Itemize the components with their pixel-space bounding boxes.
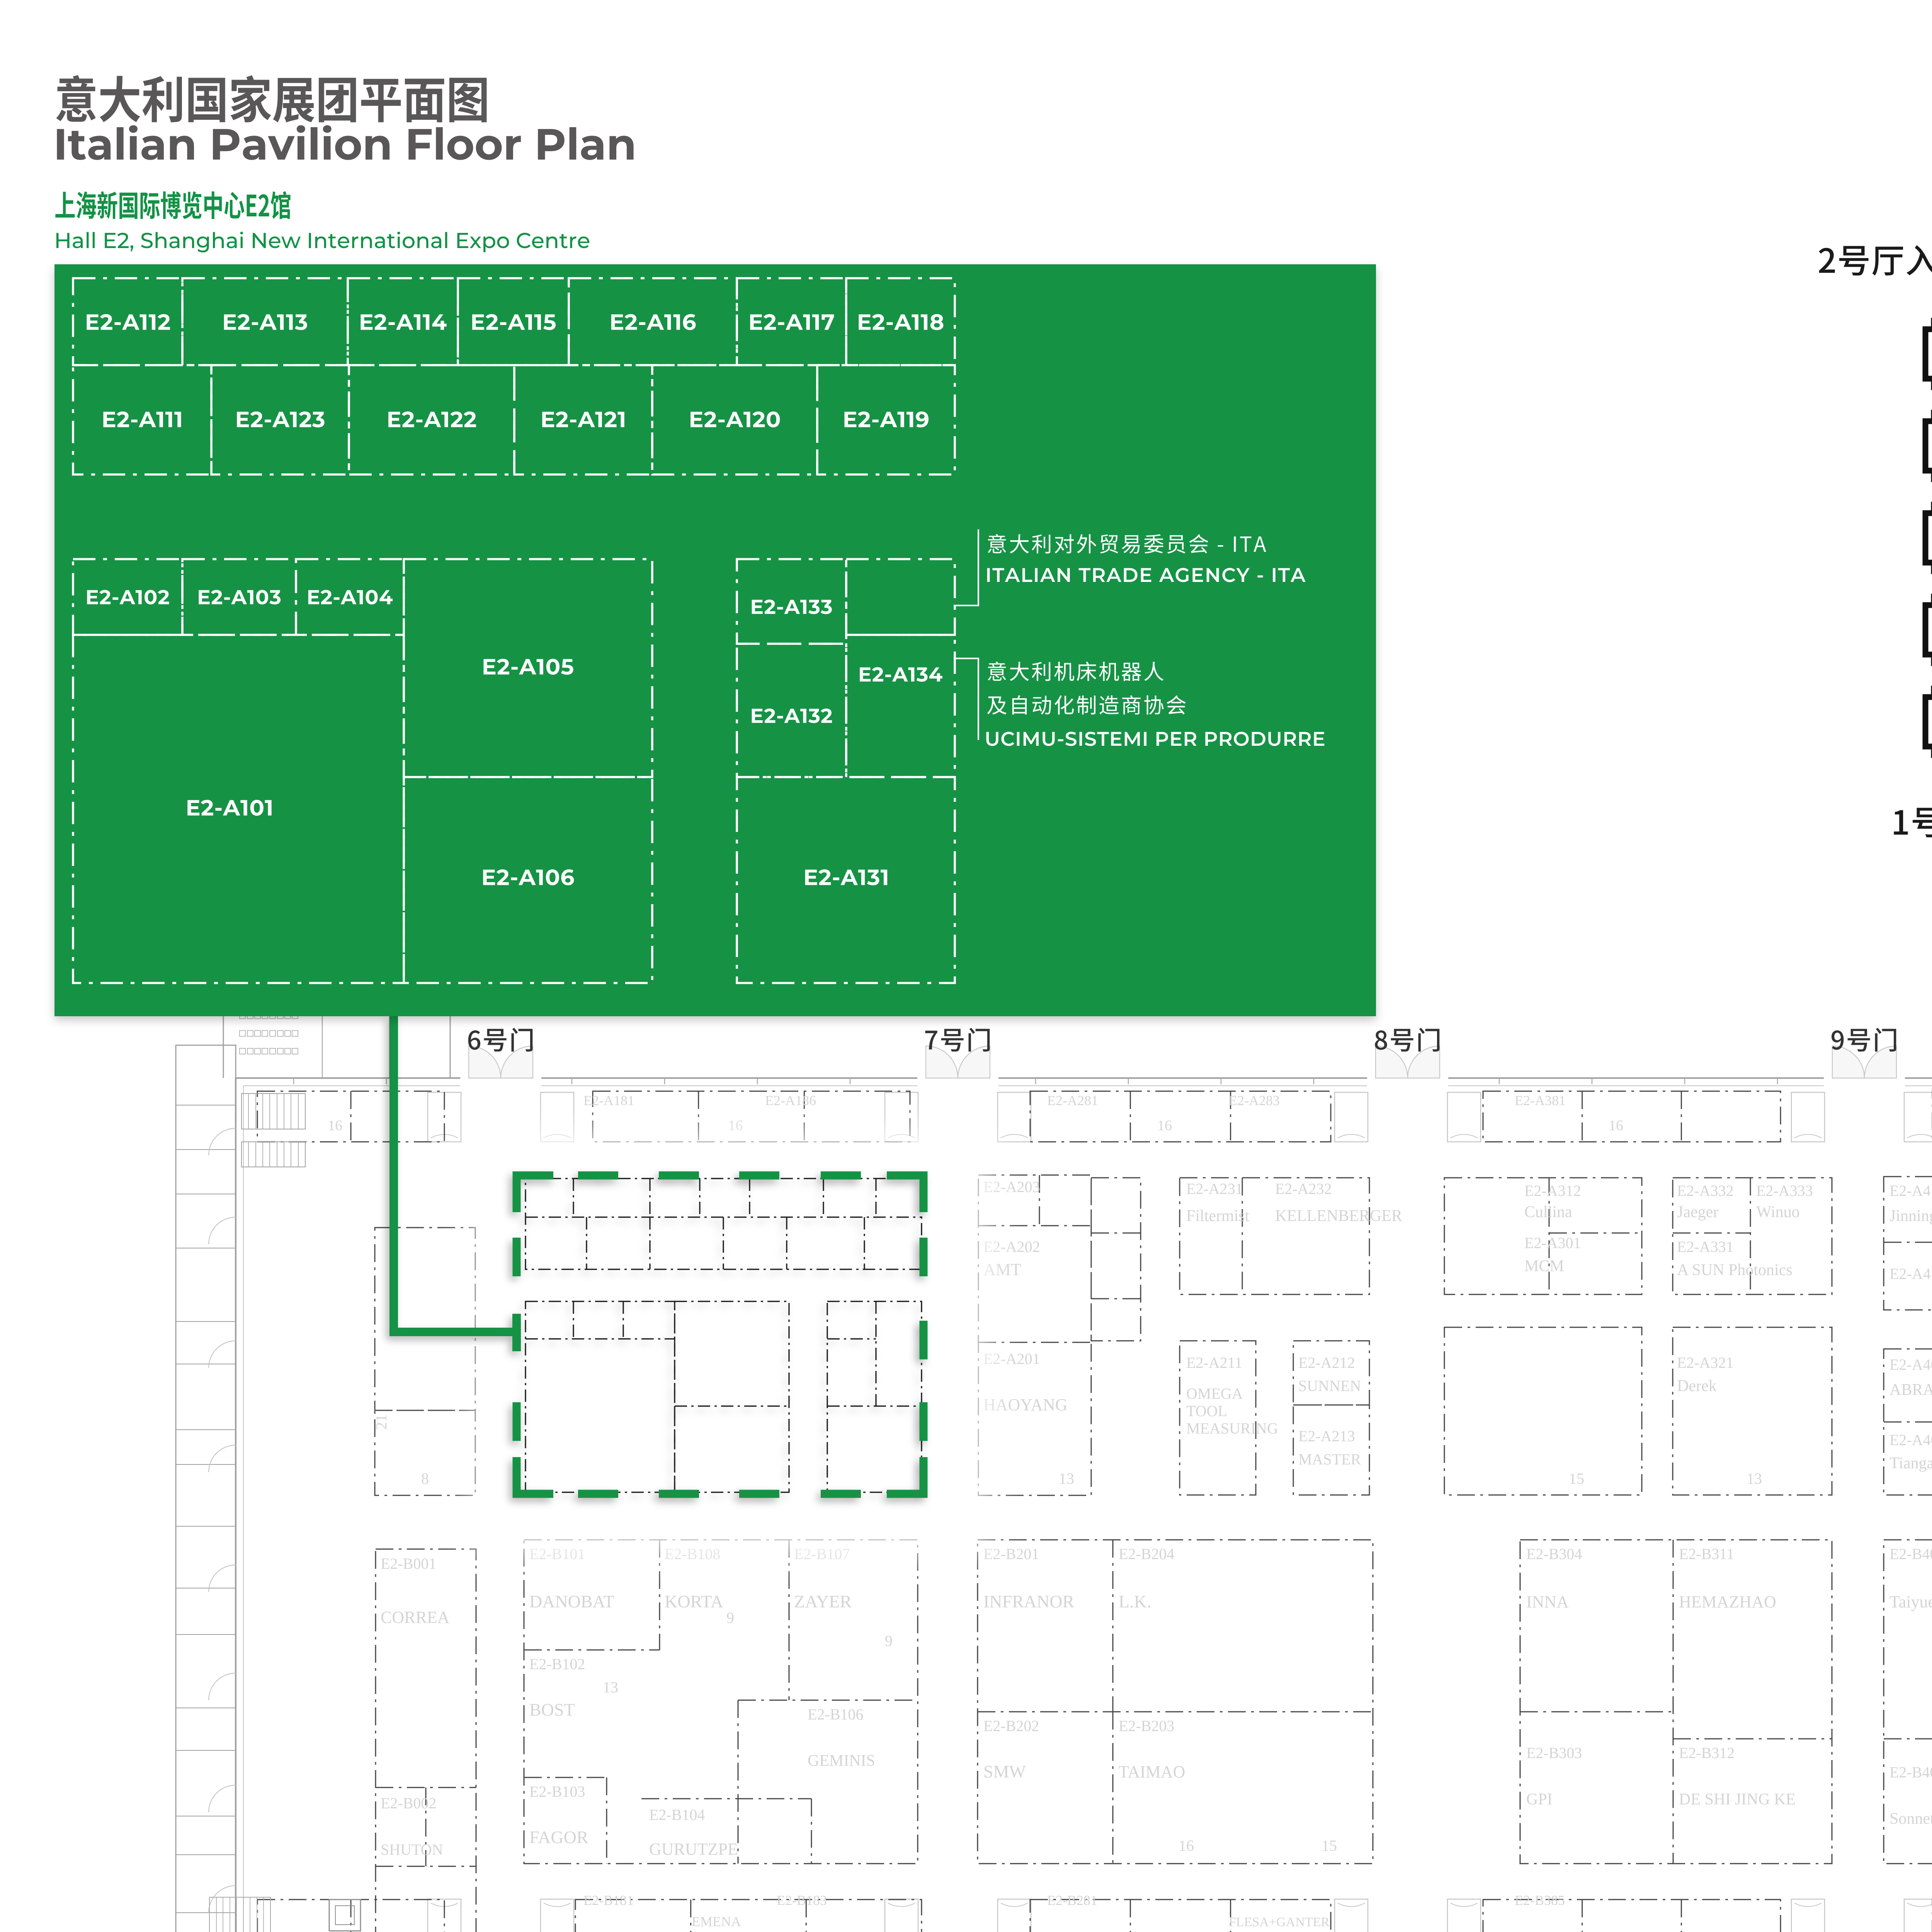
svg-text:9: 9 bbox=[885, 1632, 893, 1650]
svg-text:BOST: BOST bbox=[529, 1700, 575, 1719]
svg-text:Jaeger: Jaeger bbox=[1677, 1203, 1718, 1221]
svg-text:E2-B001: E2-B001 bbox=[381, 1555, 436, 1572]
svg-text:21: 21 bbox=[372, 1414, 390, 1430]
svg-text:HEMAZHAO: HEMAZHAO bbox=[1679, 1592, 1776, 1611]
svg-text:E2-B204: E2-B204 bbox=[1119, 1545, 1174, 1563]
svg-text:16: 16 bbox=[1179, 1837, 1194, 1854]
svg-text:E2-A213: E2-A213 bbox=[1298, 1427, 1355, 1445]
svg-text:Winuo: Winuo bbox=[1756, 1203, 1800, 1221]
svg-text:EMENA: EMENA bbox=[692, 1914, 741, 1929]
svg-text:13: 13 bbox=[1059, 1470, 1074, 1487]
svg-text:E2-B303: E2-B303 bbox=[1526, 1744, 1582, 1762]
svg-text:E2-B103: E2-B103 bbox=[529, 1783, 585, 1800]
svg-text:E2-A333: E2-A333 bbox=[1756, 1182, 1813, 1199]
svg-text:E2-B102: E2-B102 bbox=[529, 1655, 585, 1673]
svg-text:E2-B202: E2-B202 bbox=[983, 1717, 1039, 1735]
svg-text:E2-B183: E2-B183 bbox=[777, 1893, 827, 1908]
svg-text:SMW: SMW bbox=[983, 1762, 1026, 1781]
svg-text:16: 16 bbox=[328, 1117, 342, 1134]
svg-text:E2-B304: E2-B304 bbox=[1526, 1545, 1582, 1563]
svg-text:E2-B203: E2-B203 bbox=[1119, 1717, 1174, 1735]
svg-text:E2-A283: E2-A283 bbox=[1229, 1093, 1280, 1108]
svg-text:E2-B312: E2-B312 bbox=[1679, 1744, 1735, 1762]
svg-text:E2-B311: E2-B311 bbox=[1679, 1545, 1734, 1563]
svg-text:E2-A186: E2-A186 bbox=[765, 1093, 816, 1108]
svg-text:E2-A211: E2-A211 bbox=[1186, 1354, 1242, 1371]
svg-text:16: 16 bbox=[728, 1117, 743, 1134]
svg-text:E2-A232: E2-A232 bbox=[1275, 1180, 1332, 1197]
svg-text:E2-A331: E2-A331 bbox=[1677, 1238, 1734, 1255]
svg-text:MASTER: MASTER bbox=[1298, 1451, 1361, 1468]
svg-text:HAOYANG: HAOYANG bbox=[983, 1395, 1068, 1414]
svg-text:E2-B402: E2-B402 bbox=[1889, 1764, 1932, 1781]
svg-text:E2-B401: E2-B401 bbox=[1889, 1545, 1932, 1563]
svg-text:OMEGA: OMEGA bbox=[1186, 1385, 1243, 1402]
svg-text:TOOL: TOOL bbox=[1186, 1402, 1227, 1420]
svg-text:Filtermist: Filtermist bbox=[1186, 1207, 1250, 1225]
svg-text:ZAYER: ZAYER bbox=[794, 1592, 852, 1611]
svg-text:E2-A312: E2-A312 bbox=[1524, 1182, 1581, 1199]
svg-text:E2-A201: E2-A201 bbox=[983, 1350, 1040, 1367]
svg-text:TAIMAO: TAIMAO bbox=[1119, 1762, 1185, 1781]
svg-text:GEMINIS: GEMINIS bbox=[808, 1752, 875, 1770]
svg-text:E2-A281: E2-A281 bbox=[1047, 1093, 1098, 1108]
svg-text:8: 8 bbox=[421, 1470, 429, 1487]
svg-text:E2-A301: E2-A301 bbox=[1524, 1234, 1581, 1252]
svg-text:INNA: INNA bbox=[1526, 1592, 1569, 1611]
svg-text:16: 16 bbox=[1609, 1117, 1623, 1134]
svg-text:Sonnett: Sonnett bbox=[1889, 1810, 1932, 1828]
svg-text:E2-A202: E2-A202 bbox=[983, 1238, 1040, 1255]
svg-text:Jinning: Jinning bbox=[1889, 1207, 1932, 1225]
svg-text:E2-B181: E2-B181 bbox=[583, 1893, 634, 1908]
svg-text:E2-A181: E2-A181 bbox=[583, 1093, 634, 1108]
svg-text:E2-A402: E2-A402 bbox=[1889, 1356, 1932, 1373]
svg-text:9: 9 bbox=[726, 1609, 734, 1626]
svg-text:CORREA: CORREA bbox=[381, 1608, 450, 1627]
svg-text:E2-A231: E2-A231 bbox=[1186, 1180, 1243, 1197]
svg-text:E2-A381: E2-A381 bbox=[1515, 1093, 1566, 1108]
svg-text:Tiangang: Tiangang bbox=[1889, 1454, 1932, 1472]
svg-text:E2-A212: E2-A212 bbox=[1298, 1354, 1355, 1371]
svg-text:KORTA: KORTA bbox=[665, 1592, 723, 1611]
svg-text:FAGOR: FAGOR bbox=[529, 1827, 588, 1847]
svg-text:16: 16 bbox=[1157, 1117, 1172, 1134]
svg-text:E2-A321: E2-A321 bbox=[1677, 1354, 1734, 1371]
svg-text:13: 13 bbox=[1747, 1470, 1762, 1487]
svg-text:DE SHI JING KE: DE SHI JING KE bbox=[1679, 1791, 1796, 1808]
svg-text:FLESA+GANTER: FLESA+GANTER bbox=[1229, 1915, 1330, 1929]
svg-text:Derek: Derek bbox=[1677, 1377, 1717, 1395]
svg-text:Taiyuenc: Taiyuenc bbox=[1889, 1592, 1932, 1611]
svg-text:A SUN Photonics: A SUN Photonics bbox=[1677, 1261, 1793, 1279]
svg-text:MEASURING: MEASURING bbox=[1186, 1420, 1278, 1437]
svg-text:ABRASIVES: ABRASIVES bbox=[1889, 1381, 1932, 1399]
svg-text:DANOBAT: DANOBAT bbox=[529, 1592, 614, 1611]
svg-text:SHUTON: SHUTON bbox=[381, 1841, 443, 1858]
svg-text:13: 13 bbox=[603, 1679, 618, 1696]
svg-text:15: 15 bbox=[1321, 1837, 1337, 1854]
svg-text:L.K.: L.K. bbox=[1119, 1592, 1151, 1611]
svg-text:KELLENBERGER: KELLENBERGER bbox=[1275, 1207, 1402, 1225]
svg-text:INFRANOR: INFRANOR bbox=[983, 1592, 1074, 1611]
svg-text:MCM: MCM bbox=[1524, 1257, 1564, 1275]
svg-text:E2-A332: E2-A332 bbox=[1677, 1182, 1734, 1199]
svg-text:Cullina: Cullina bbox=[1524, 1203, 1572, 1221]
svg-text:E2-B281: E2-B281 bbox=[1047, 1893, 1097, 1908]
svg-text:E2-A411: E2-A411 bbox=[1889, 1265, 1932, 1282]
svg-text:E2-B002: E2-B002 bbox=[381, 1794, 436, 1812]
svg-text:E2-A203: E2-A203 bbox=[983, 1178, 1040, 1196]
svg-text:E2-A401: E2-A401 bbox=[1889, 1431, 1932, 1449]
svg-text:GURUTZPE: GURUTZPE bbox=[649, 1840, 738, 1859]
svg-text:E2-B106: E2-B106 bbox=[808, 1706, 863, 1723]
svg-text:E2-B385: E2-B385 bbox=[1515, 1893, 1565, 1908]
svg-text:SUNNEN: SUNNEN bbox=[1298, 1377, 1361, 1395]
svg-text:E2-A412: E2-A412 bbox=[1889, 1182, 1932, 1199]
svg-text:E2-B201: E2-B201 bbox=[983, 1545, 1039, 1563]
svg-text:15: 15 bbox=[1569, 1470, 1584, 1487]
svg-text:E2-B104: E2-B104 bbox=[649, 1806, 705, 1823]
svg-text:GPI: GPI bbox=[1526, 1791, 1553, 1808]
